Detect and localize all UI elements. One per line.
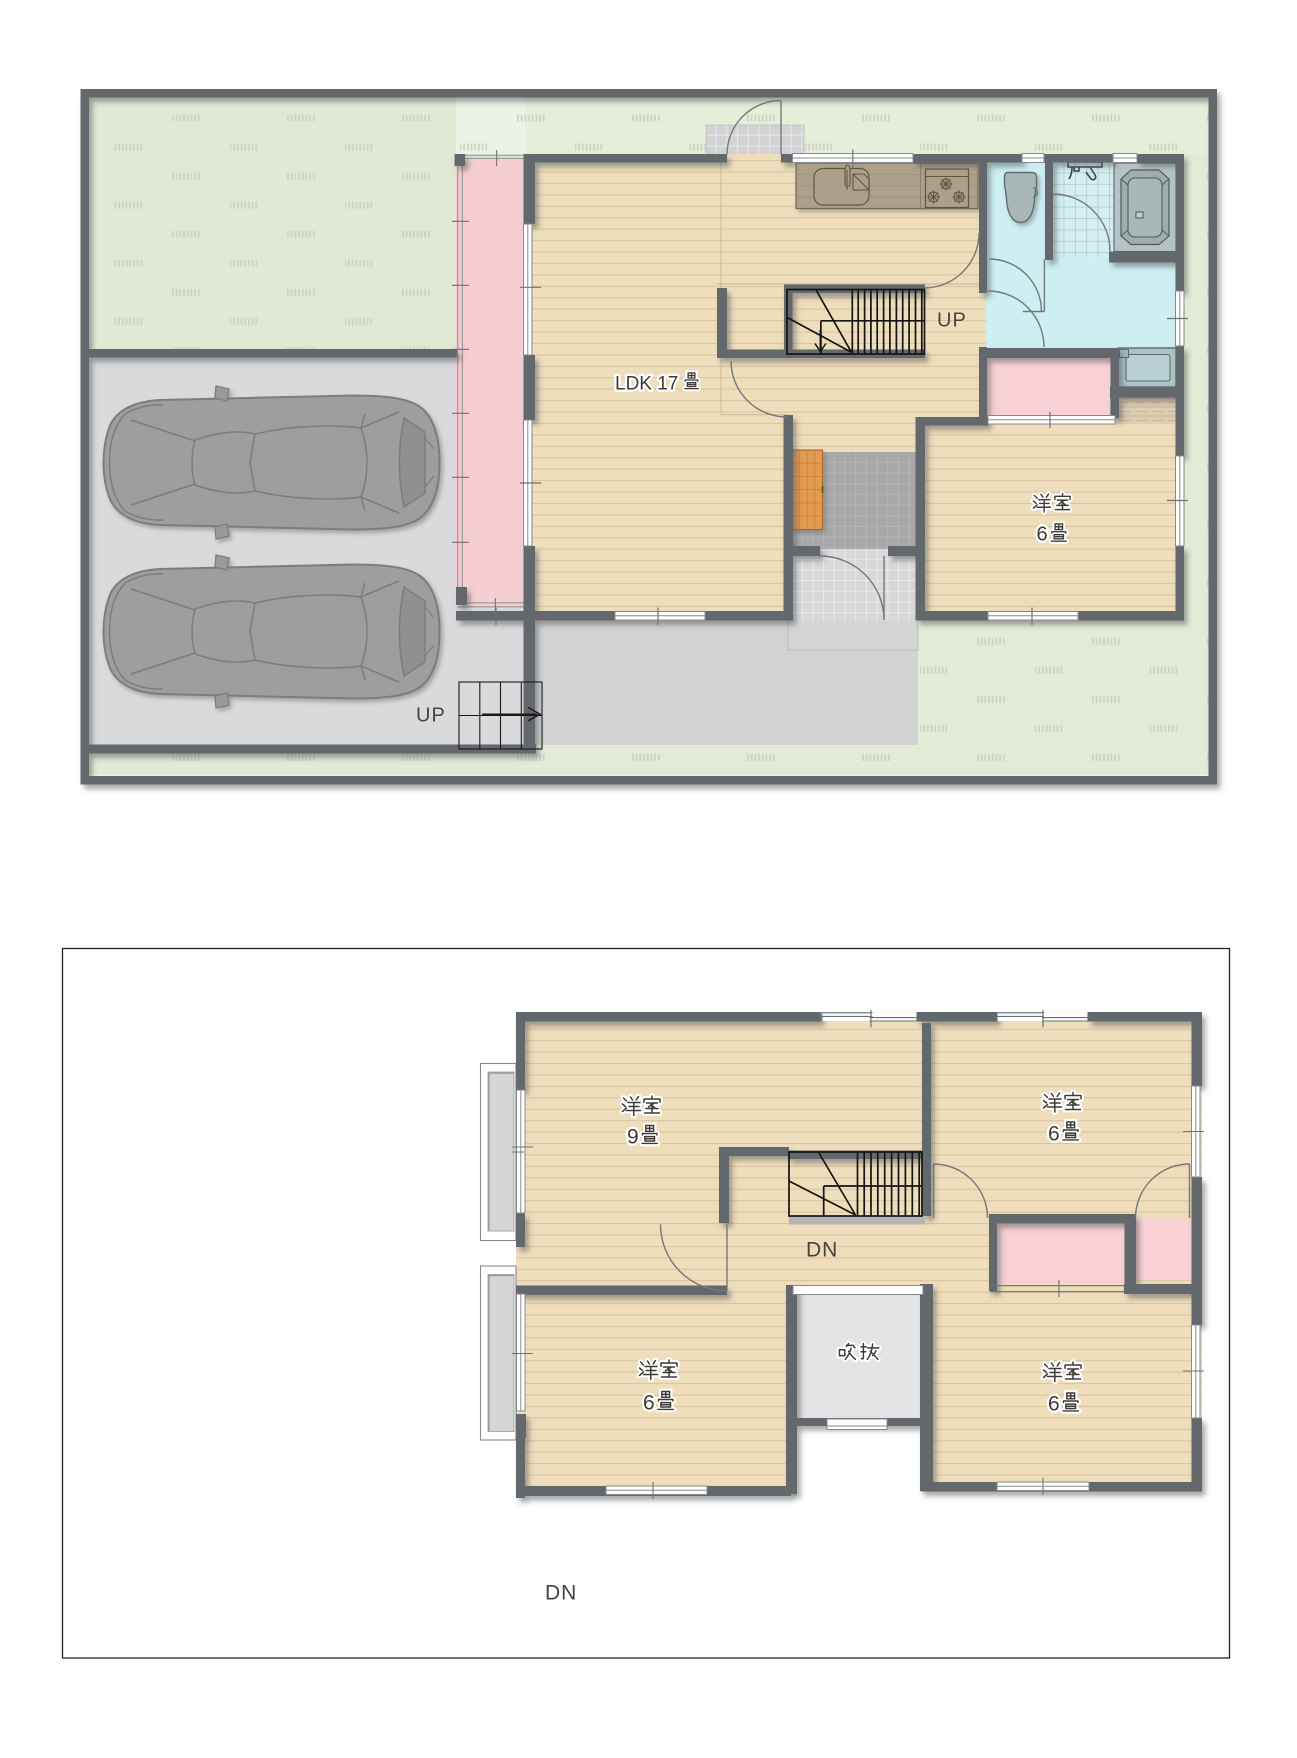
svg-text:6: 6 (1048, 1123, 1060, 1146)
svg-text:UP: UP (416, 705, 446, 727)
svg-text:LDK 17: LDK 17 (615, 374, 678, 395)
svg-text:6: 6 (643, 1392, 655, 1415)
svg-text:DN: DN (545, 1582, 577, 1605)
svg-text:DN: DN (806, 1239, 838, 1262)
svg-text:9: 9 (627, 1126, 639, 1149)
svg-text:UP: UP (937, 310, 967, 332)
svg-text:6: 6 (1048, 1393, 1060, 1416)
svg-text:6: 6 (1037, 524, 1048, 546)
